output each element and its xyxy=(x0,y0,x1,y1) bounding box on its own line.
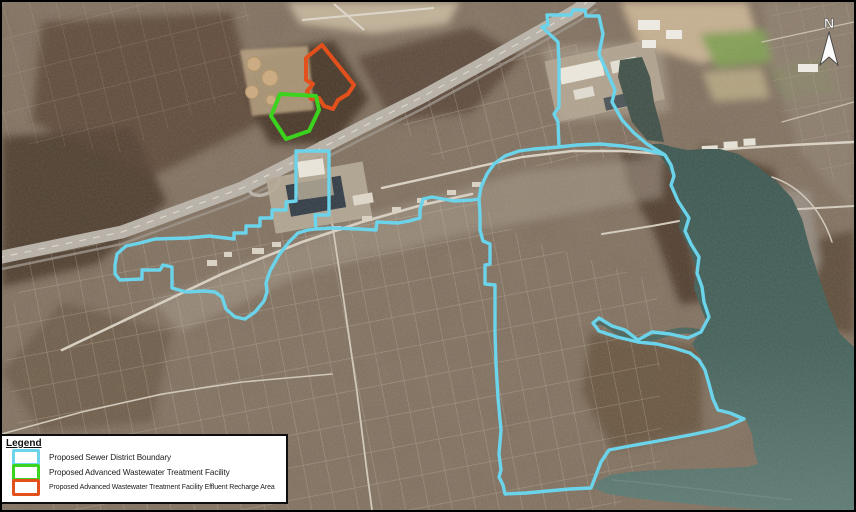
map-viewport: N Legend Proposed Sewer District Boundar… xyxy=(0,0,856,512)
north-label: N xyxy=(824,15,834,31)
legend-item-label: Proposed Advanced Wastewater Treatment F… xyxy=(49,468,230,477)
legend-item-recharge-area: Proposed Advanced Wastewater Treatment F… xyxy=(12,480,286,495)
legend: Legend Proposed Sewer District Boundary … xyxy=(2,434,288,504)
legend-title: Legend xyxy=(6,438,286,449)
legend-item-label: Proposed Sewer District Boundary xyxy=(49,453,171,462)
legend-item-treatment-facility: Proposed Advanced Wastewater Treatment F… xyxy=(12,465,286,480)
recharge-area-swatch xyxy=(12,479,40,496)
legend-item-sewer-district: Proposed Sewer District Boundary xyxy=(12,450,286,465)
legend-item-label: Proposed Advanced Wastewater Treatment F… xyxy=(49,484,275,491)
